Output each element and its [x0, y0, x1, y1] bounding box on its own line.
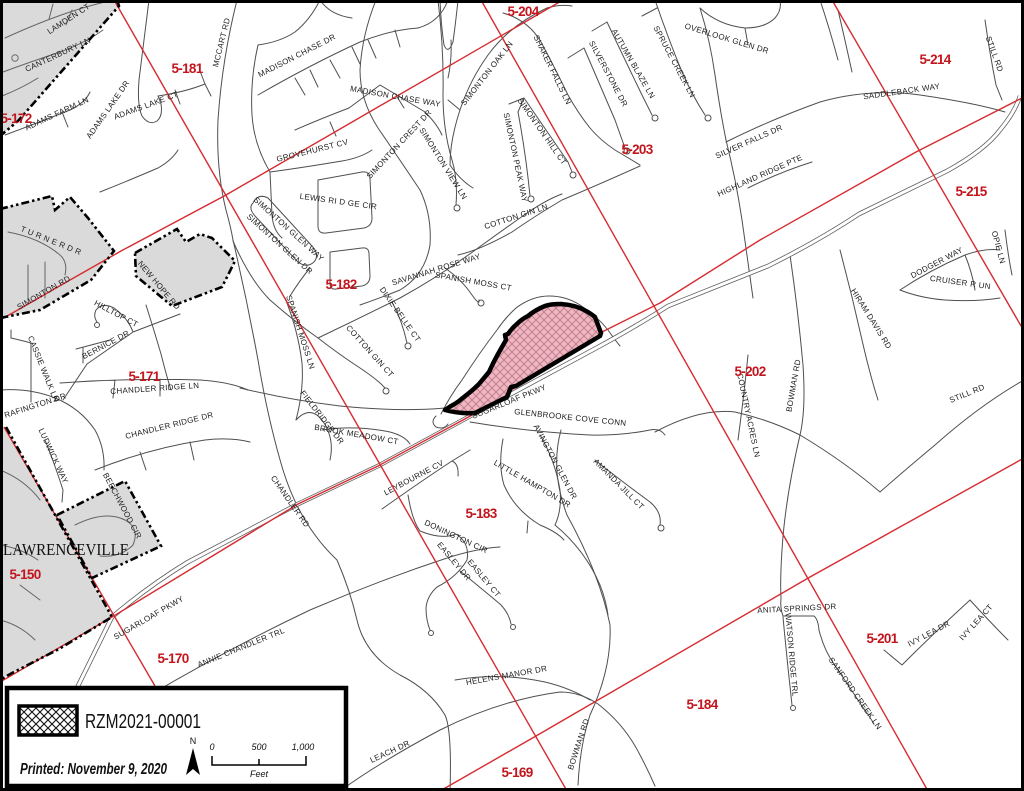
- svg-text:Printed: November 9, 2020: Printed: November 9, 2020: [20, 761, 167, 778]
- svg-text:LAWRENCEVILLE: LAWRENCEVILLE: [3, 540, 129, 559]
- svg-text:5-169: 5-169: [501, 765, 532, 780]
- svg-text:5-184: 5-184: [686, 697, 718, 712]
- svg-text:500: 500: [251, 742, 266, 752]
- svg-text:5-170: 5-170: [157, 651, 188, 666]
- svg-text:1,000: 1,000: [292, 742, 315, 752]
- svg-text:5-183: 5-183: [465, 506, 497, 521]
- svg-text:5-202: 5-202: [734, 364, 765, 379]
- svg-text:5-182: 5-182: [325, 277, 356, 292]
- svg-text:5-201: 5-201: [866, 631, 898, 646]
- svg-text:5-171: 5-171: [128, 369, 160, 384]
- svg-text:5-214: 5-214: [919, 52, 951, 67]
- svg-text:5-203: 5-203: [621, 142, 653, 157]
- svg-text:5-204: 5-204: [507, 4, 539, 19]
- svg-text:N: N: [190, 736, 197, 746]
- svg-text:5-215: 5-215: [955, 184, 987, 199]
- svg-text:0: 0: [209, 742, 214, 752]
- svg-text:Feet: Feet: [250, 769, 269, 779]
- svg-text:5-181: 5-181: [171, 61, 203, 76]
- svg-text:5-172: 5-172: [0, 111, 31, 126]
- svg-text:5-150: 5-150: [9, 567, 40, 582]
- svg-text:RZM2021-00001: RZM2021-00001: [85, 711, 201, 733]
